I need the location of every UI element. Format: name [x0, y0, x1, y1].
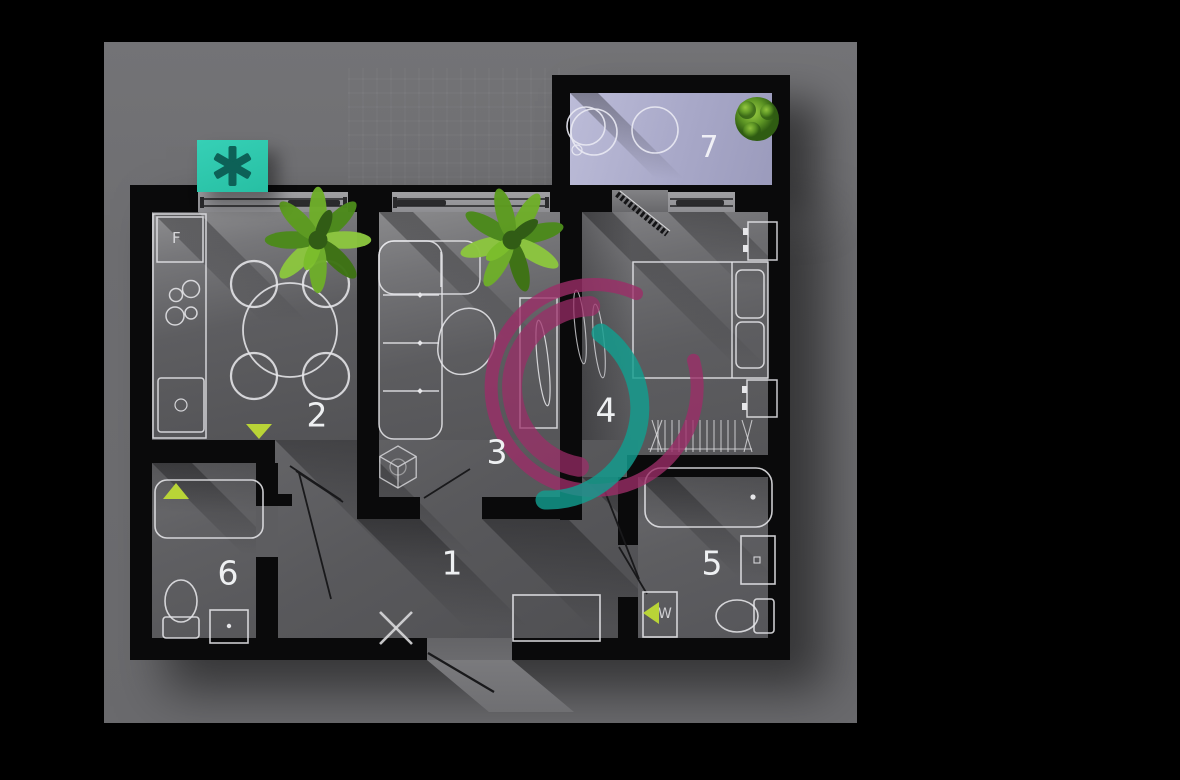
watermark-outer-ring — [491, 284, 697, 490]
watermark-teal-swirl — [545, 333, 640, 500]
door-marker-left-icon — [643, 602, 659, 624]
washer-label: W — [658, 607, 672, 621]
room-label-7: 7 — [699, 133, 718, 163]
room-label-4: 4 — [596, 394, 617, 427]
logo-badge — [197, 140, 268, 192]
room-label-3: 3 — [487, 436, 508, 469]
door-marker-down-icon — [246, 424, 272, 439]
fridge-label: F — [172, 231, 181, 246]
watermark-inner-arc — [512, 306, 590, 467]
asterisk-icon — [197, 140, 268, 192]
room-label-1: 1 — [442, 547, 463, 580]
room-label-5: 5 — [702, 547, 723, 580]
watermark-logo — [0, 0, 1180, 780]
room-label-2: 2 — [307, 399, 328, 432]
floor-plan-scene: 1 2 3 4 5 6 7 F W — [0, 0, 1180, 780]
room-label-6: 6 — [218, 557, 239, 590]
door-marker-up-icon — [163, 483, 189, 499]
